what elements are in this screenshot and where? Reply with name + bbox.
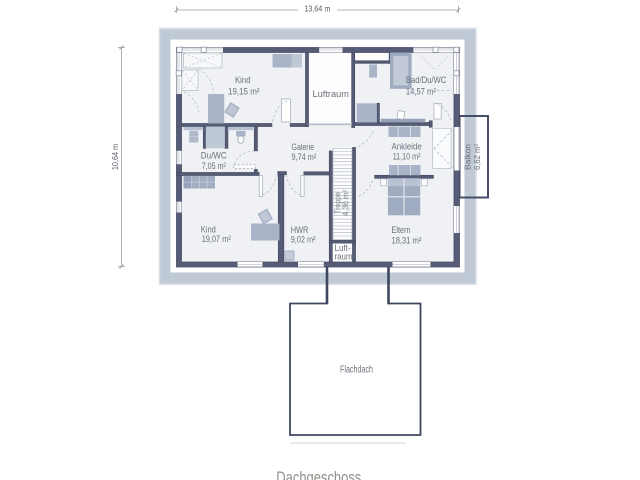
svg-text:7,05 m²: 7,05 m² [202,160,226,171]
svg-text:9,02 m²: 9,02 m² [291,234,316,245]
svg-text:Eltern: Eltern [392,224,411,235]
svg-text:Flachdach: Flachdach [340,365,373,376]
svg-text:13,64 m: 13,64 m [304,3,330,13]
svg-text:raum: raum [335,251,353,261]
svg-text:19,07 m²: 19,07 m² [202,233,231,244]
svg-text:Luftraum: Luftraum [313,88,350,99]
svg-text:19,15 m²: 19,15 m² [228,86,260,97]
svg-text:6,62 m²: 6,62 m² [472,144,482,170]
svg-text:Galerie: Galerie [292,141,315,152]
svg-text:Dachgeschoss: Dachgeschoss [276,468,361,480]
svg-text:Balkon: Balkon [463,144,473,170]
svg-text:11,10 m²: 11,10 m² [393,151,421,162]
svg-text:Kind: Kind [235,74,251,85]
svg-text:Bad/Du/WC: Bad/Du/WC [406,74,447,85]
svg-text:4,36 m²: 4,36 m² [341,190,350,216]
svg-text:10,64 m: 10,64 m [110,144,120,170]
svg-text:9,74 m²: 9,74 m² [292,151,317,162]
svg-text:18,31 m²: 18,31 m² [392,235,422,246]
svg-text:14,57 m²: 14,57 m² [406,86,436,97]
